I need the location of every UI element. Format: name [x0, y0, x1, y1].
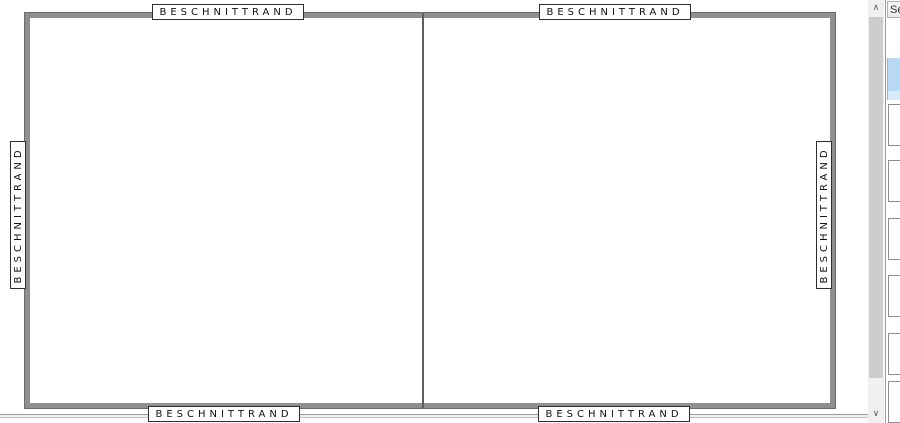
bottom-separator — [0, 414, 868, 418]
bleed-label-top-right: BESCHNITTRAND — [539, 4, 691, 20]
pages-panel-header[interactable]: Se — [887, 1, 900, 18]
bleed-label-top-left: BESCHNITTRAND — [152, 4, 304, 20]
bleed-label-left: BESCHNITTRAND — [10, 141, 26, 289]
scroll-down-button[interactable]: ∨ — [868, 406, 884, 423]
page-spread — [30, 18, 830, 403]
page-thumbnail[interactable] — [888, 104, 900, 146]
page-thumbnail[interactable] — [888, 275, 900, 317]
scrollbar-track[interactable] — [868, 17, 884, 406]
scroll-up-button[interactable]: ∧ — [868, 0, 884, 17]
page-thumbnail[interactable] — [888, 218, 900, 260]
page-right[interactable] — [422, 18, 830, 403]
page-thumbnail[interactable] — [888, 381, 900, 423]
page-seam — [422, 13, 424, 408]
pages-panel: Se — [885, 0, 900, 423]
page-thumbnail[interactable] — [888, 333, 900, 375]
page-thumbnail[interactable] — [888, 160, 900, 202]
vertical-scrollbar[interactable]: ∧ ∨ — [868, 0, 884, 423]
bleed-label-left-text: BESCHNITTRAND — [10, 141, 26, 289]
scrollbar-thumb[interactable] — [869, 17, 883, 378]
bleed-label-right-text: BESCHNITTRAND — [816, 141, 832, 289]
scroll-up-icon: ∧ — [873, 4, 880, 13]
bleed-label-right: BESCHNITTRAND — [816, 141, 832, 289]
scroll-down-icon: ∨ — [873, 410, 880, 419]
page-thumbnail-selected[interactable] — [887, 58, 900, 100]
bleed-label-bottom-left: BESCHNITTRAND — [148, 406, 300, 422]
page-left[interactable] — [30, 18, 422, 403]
pages-panel-header-label: Se — [890, 4, 900, 16]
bleed-label-bottom-right: BESCHNITTRAND — [538, 406, 690, 422]
bleed-frame — [24, 12, 836, 409]
